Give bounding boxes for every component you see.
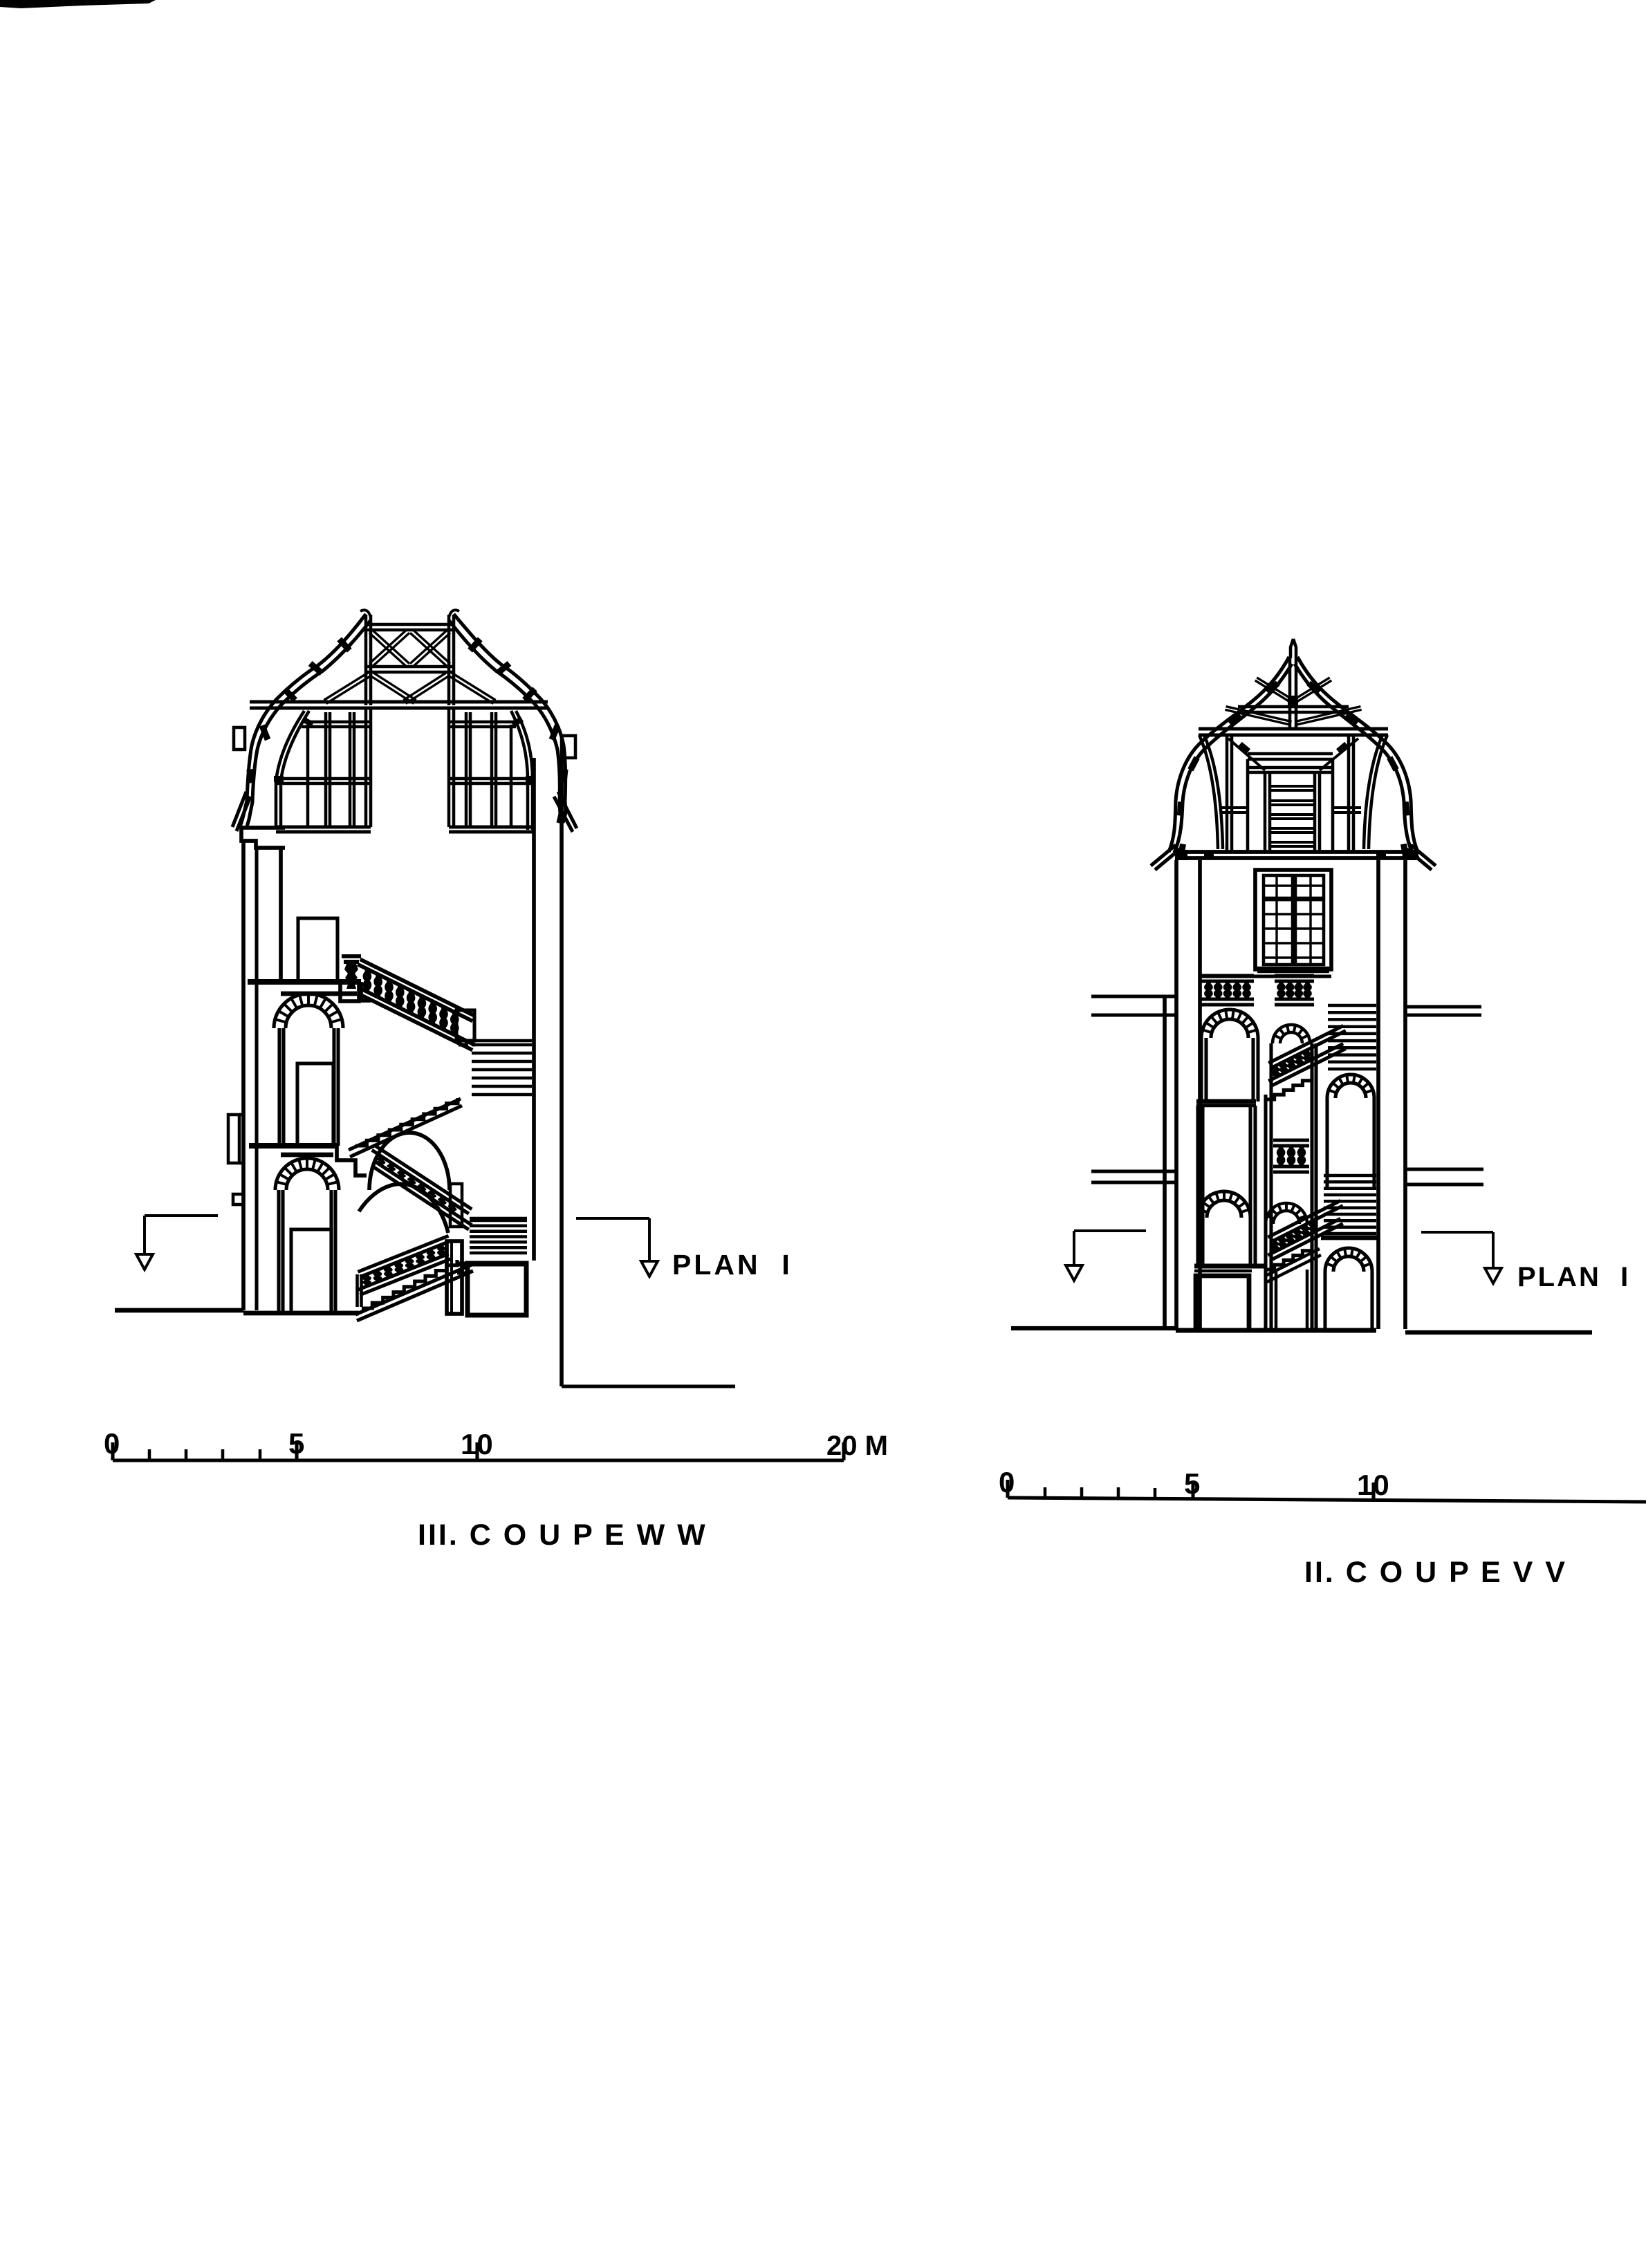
svg-text:III. C O U P E W W: III. C O U P E W W [418,1518,708,1552]
svg-text:10: 10 [461,1428,493,1460]
svg-text:20 M: 20 M [826,1431,888,1461]
svg-text:0: 0 [104,1427,120,1460]
svg-text:PLAN I: PLAN I [1517,1262,1630,1292]
svg-text:II. C O U P E V V: II. C O U P E V V [1304,1556,1567,1589]
svg-text:5: 5 [288,1427,304,1460]
svg-text:PLAN I: PLAN I [672,1249,793,1281]
svg-text:5: 5 [1184,1467,1200,1500]
svg-text:10: 10 [1357,1469,1389,1501]
svg-text:0: 0 [999,1466,1015,1498]
